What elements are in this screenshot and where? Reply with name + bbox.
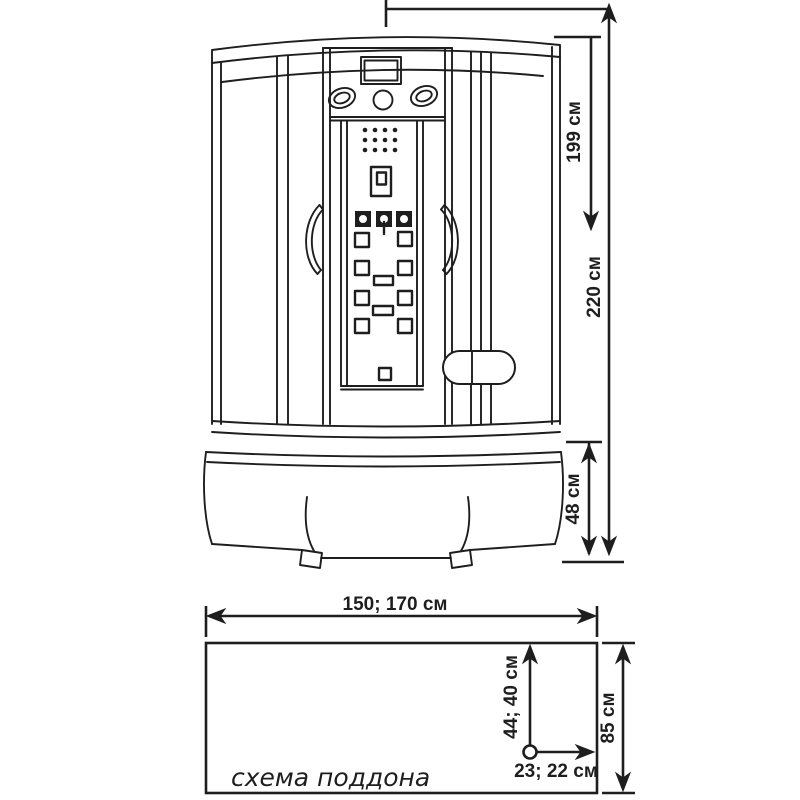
dimension-tray-height: 48 см	[562, 442, 624, 562]
function-buttons	[355, 232, 412, 380]
wall-bottom-band	[212, 421, 560, 438]
panel-column	[341, 121, 423, 390]
tray-scheme: 150; 170 см 85 см 44; 40 см 23; 22 см сх…	[206, 594, 635, 793]
dimension-label-total-height: 220 см	[584, 256, 605, 318]
dimension-tray-depth: 85 см	[598, 643, 635, 793]
soap-shelf	[443, 351, 515, 384]
dimension-label-tray-depth: 85 см	[598, 692, 619, 743]
cabin-front-view	[204, 37, 563, 568]
shower-cabin-dimension-diagram: 220 см 199 см 48 см 150; 170 см	[0, 0, 800, 800]
dimension-door-height: 199 см	[554, 37, 601, 230]
dimension-drain-from-top: 44; 40 см	[501, 645, 537, 745]
dimension-label-tray-height: 48 см	[563, 473, 584, 524]
control-panel	[306, 48, 515, 424]
dimension-total-height: 220 см	[386, 0, 616, 555]
mixer-button-row	[355, 211, 412, 234]
handle-right	[441, 205, 458, 274]
drain-circle	[524, 746, 537, 759]
knob-dial	[374, 91, 393, 110]
dimension-label-drain-from-right: 23; 22 см	[514, 761, 598, 782]
cabin-tray	[204, 452, 563, 568]
speaker-right-icon	[408, 82, 440, 109]
cabin-roof	[212, 37, 560, 82]
dimension-label-drain-from-top: 44; 40 см	[501, 655, 522, 739]
tray-scheme-caption: схема поддона	[231, 763, 430, 792]
dimension-label-door-height: 199 см	[564, 101, 585, 163]
handle-left	[306, 205, 323, 274]
dimension-tray-width: 150; 170 см	[206, 594, 597, 637]
toggle-switch	[371, 167, 391, 196]
dimension-label-tray-width: 150; 170 см	[343, 594, 448, 615]
nozzle-dot-grid	[363, 128, 398, 153]
dimension-drain-from-right: 23; 22 см	[514, 745, 598, 782]
